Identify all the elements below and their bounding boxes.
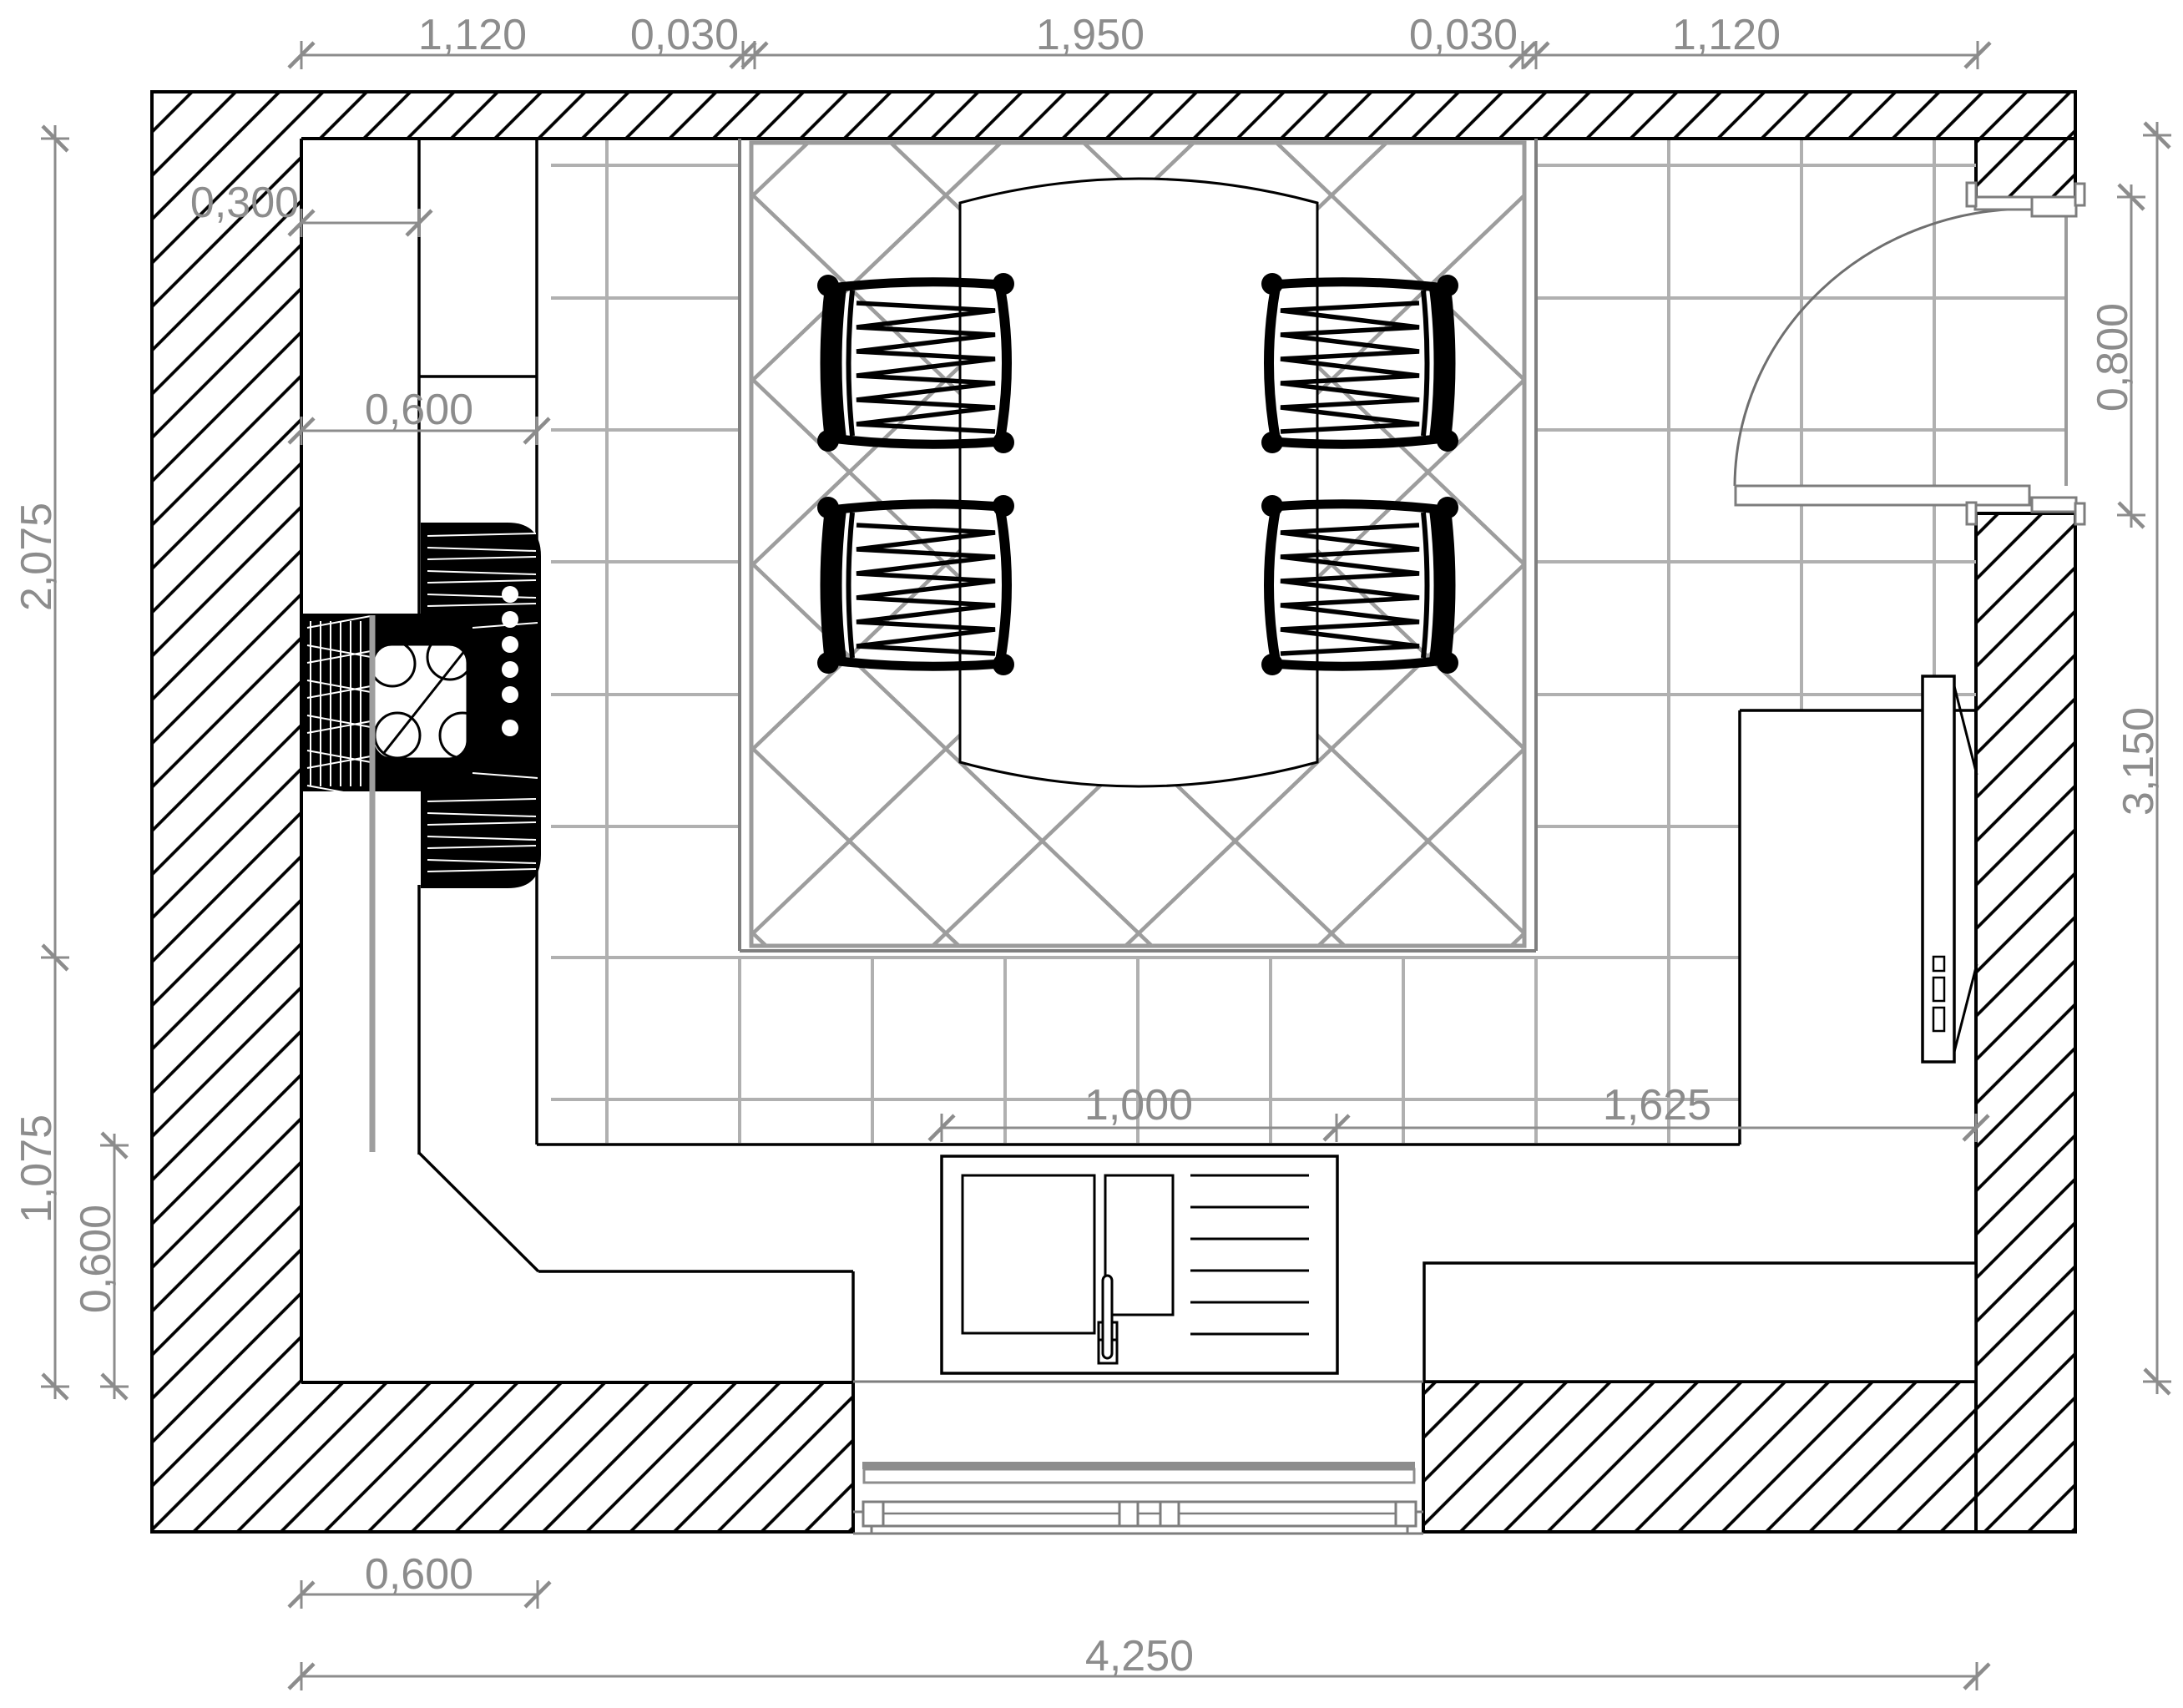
svg-text:1,120: 1,120 xyxy=(418,11,527,59)
svg-text:1,075: 1,075 xyxy=(13,1114,61,1223)
svg-text:1,120: 1,120 xyxy=(1672,11,1781,59)
svg-text:0,030: 0,030 xyxy=(630,11,739,59)
svg-text:2,075: 2,075 xyxy=(13,503,61,611)
svg-text:0,600: 0,600 xyxy=(365,1550,473,1599)
svg-text:0,600: 0,600 xyxy=(72,1205,120,1313)
svg-text:1,000: 1,000 xyxy=(1084,1081,1193,1129)
svg-text:0,300: 0,300 xyxy=(190,179,299,227)
svg-text:0,600: 0,600 xyxy=(365,386,473,434)
svg-text:0,030: 0,030 xyxy=(1409,11,1518,59)
svg-text:0,800: 0,800 xyxy=(2089,303,2137,412)
svg-text:3,150: 3,150 xyxy=(2115,707,2163,816)
svg-text:1,625: 1,625 xyxy=(1603,1081,1711,1129)
svg-text:4,250: 4,250 xyxy=(1085,1632,1194,1680)
svg-text:1,950: 1,950 xyxy=(1036,11,1145,59)
